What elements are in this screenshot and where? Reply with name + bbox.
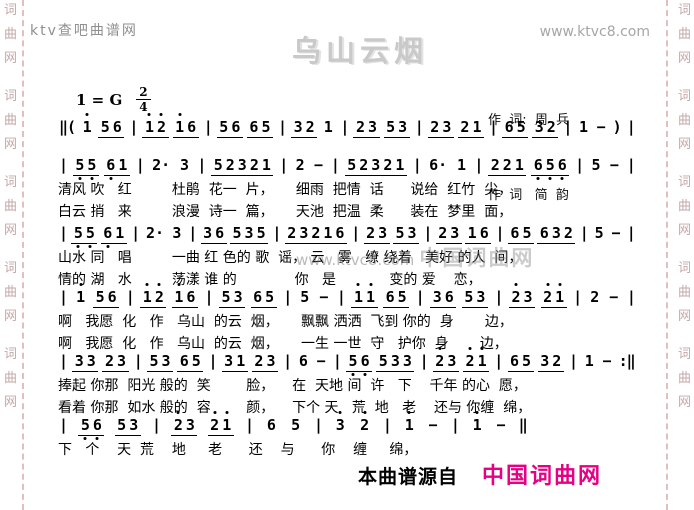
note: 1 — [583, 352, 595, 370]
note-high-octave: 2 — [510, 288, 522, 306]
note-group: 52321 — [211, 156, 273, 176]
note-high-octave: 1 — [554, 288, 566, 306]
note-low-octave: 5 — [84, 224, 96, 242]
note: 6 — [111, 118, 123, 136]
note: 5 — [521, 224, 533, 242]
note-high-octave: 3 — [334, 416, 346, 434]
barline: | — [133, 352, 143, 370]
note: 5 — [190, 352, 202, 370]
note: 5 — [377, 352, 389, 370]
note: 6 — [478, 224, 490, 242]
note: 6 — [297, 352, 309, 370]
rail-char: 网 — [4, 224, 17, 238]
note: 5 — [255, 224, 267, 242]
note: 5 — [220, 288, 232, 306]
note-high-octave: 1 — [403, 416, 415, 434]
note: 6 — [230, 118, 242, 136]
note-group: 1 — [582, 352, 596, 370]
barline: | — [579, 224, 589, 242]
note-high-octave: 1 — [81, 118, 93, 136]
note: 5 — [260, 118, 272, 136]
barline: | — [203, 288, 213, 306]
lyrics-line: 山水 同 唱 一曲 红 色的 歌 谣， 云 雾 缭 绕着 美好 的人 间， — [58, 249, 636, 268]
note: 3 — [389, 352, 401, 370]
note-group: 23216 — [285, 224, 347, 244]
note: 2· — [151, 156, 172, 174]
note-group: 55 — [71, 224, 97, 244]
note-low-octave: 6 — [102, 224, 114, 242]
note-high-octave: 1 — [365, 288, 377, 306]
rail-text-group: 词曲网 — [4, 90, 17, 152]
barline: | — [278, 156, 288, 174]
note-high-octave: 2 — [359, 416, 371, 434]
note-group: 61 — [104, 156, 130, 176]
note: 5 — [99, 118, 111, 136]
note-dash: − — [317, 288, 330, 306]
note-group: 56 — [78, 416, 104, 436]
barline: | — [330, 156, 340, 174]
note-low-octave: 5 — [79, 416, 91, 434]
barline: | — [271, 224, 281, 242]
note-group: 23 — [171, 416, 197, 436]
note: 5 — [396, 288, 408, 306]
note-group: 1 — [402, 416, 416, 434]
rail-text-group: 词曲网 — [678, 4, 691, 66]
note: 5 — [515, 118, 527, 136]
note: 1 — [513, 156, 525, 174]
note-group: 36 — [201, 224, 227, 244]
rail-text-group: 词曲网 — [678, 262, 691, 324]
rail-char: 网 — [678, 224, 691, 238]
notation-line: |5653|2321|65|32|1−|1−‖ — [58, 410, 528, 438]
rail-char: 曲 — [678, 28, 691, 42]
rail-char: 曲 — [4, 28, 17, 42]
note-group: 3 — [177, 156, 191, 174]
rail-char: 曲 — [678, 286, 691, 300]
note-group: 2· — [144, 224, 167, 242]
note-group: 23 — [353, 118, 379, 138]
barline: | — [419, 352, 429, 370]
barline: | — [412, 156, 422, 174]
note: 1 — [117, 156, 129, 174]
note: 3 — [539, 352, 551, 370]
note-high-octave: 1 — [141, 288, 153, 306]
right-watermark-rail: 词曲网词曲网词曲网词曲网词曲网 — [678, 4, 691, 410]
note-group: 65 — [247, 118, 273, 138]
note-dash: − — [315, 352, 328, 370]
note-group: 21 — [541, 288, 567, 308]
note-group: 2 — [358, 416, 372, 434]
barline: | — [336, 288, 346, 306]
note-high-octave: 1 — [143, 118, 155, 136]
note: 3 — [533, 118, 545, 136]
rail-text-group: 词曲网 — [4, 176, 17, 238]
note-group: 2 — [293, 156, 307, 174]
barline: :‖ — [618, 352, 636, 370]
note-group: 533 — [376, 352, 414, 372]
note: 2 — [437, 224, 449, 242]
note: 3 — [202, 224, 214, 242]
note: 1 — [322, 118, 334, 136]
note-group: 535 — [230, 224, 268, 244]
note: 5 — [116, 416, 128, 434]
barline: | — [244, 416, 254, 434]
barline: | — [626, 118, 636, 136]
note: 5 — [346, 156, 358, 174]
barline: | — [151, 416, 161, 434]
barline: | — [128, 118, 138, 136]
note: 2 — [358, 156, 370, 174]
note: 6 — [185, 288, 197, 306]
note-low-octave: 5 — [347, 352, 359, 370]
note-group: 23 — [433, 352, 459, 372]
note: 5 — [148, 352, 160, 370]
barline: | — [626, 156, 636, 174]
note: 2 — [103, 352, 115, 370]
note-group: 5 — [592, 224, 606, 242]
note: 3 — [406, 224, 418, 242]
barline: | — [58, 288, 68, 306]
note: 5 — [521, 352, 533, 370]
note: 3 — [243, 224, 255, 242]
note-group: 23 — [436, 224, 462, 244]
rail-char: 词 — [4, 90, 17, 104]
note-high-octave: 1 — [173, 288, 185, 306]
note-dash: − — [609, 224, 622, 242]
left-dashed-border — [22, 0, 24, 510]
note-group: 1 — [455, 156, 469, 174]
note: 2 — [224, 156, 236, 174]
note-dash: − — [595, 118, 608, 136]
note: 2 — [365, 224, 377, 242]
note: 3 — [128, 416, 140, 434]
note: 5 — [231, 224, 243, 242]
note-dash: − — [427, 416, 440, 434]
note-group: 11 — [351, 288, 377, 308]
left-watermark-rail: 词曲网词曲网词曲网词曲网词曲网 — [4, 4, 17, 410]
rail-char: 网 — [678, 310, 691, 324]
note-group: 23 — [428, 118, 454, 138]
barline: | — [415, 288, 425, 306]
note-group: 16 — [173, 118, 199, 138]
score-system-4: |156|1216|5365|5−|1165|3653|2321|2−|啊 我愿… — [58, 282, 636, 354]
barline: | — [495, 224, 505, 242]
source-label: 本曲谱源自 — [358, 462, 458, 489]
note-group: 1 — [576, 118, 590, 136]
rail-text-group: 词曲网 — [4, 262, 17, 324]
note-group: 65 — [502, 118, 528, 138]
rail-char: 曲 — [4, 286, 17, 300]
rail-char: 曲 — [4, 200, 17, 214]
note: 2 — [545, 118, 557, 136]
note: 1 — [394, 156, 406, 174]
note: 3 — [160, 352, 172, 370]
note: 6 — [509, 224, 521, 242]
note: 3 — [370, 156, 382, 174]
note: 6 — [443, 288, 455, 306]
lyrics-line: 啊 我愿 化 作 乌山 的云 烟， 飘飘 洒洒 飞到 你的 身 边， — [58, 313, 636, 332]
note: 1 — [235, 352, 247, 370]
note: 5 — [593, 224, 605, 242]
note-group: 61 — [101, 224, 127, 244]
note-low-octave: 6 — [359, 352, 371, 370]
sheet-music-page: 词曲网词曲网词曲网词曲网词曲网 词曲网词曲网词曲网词曲网词曲网 ktv查吧曲谱网… — [0, 0, 694, 510]
note: 3 — [441, 118, 453, 136]
note: 2 — [310, 224, 322, 242]
rail-text-group: 词曲网 — [4, 4, 17, 66]
barline: | — [450, 416, 460, 434]
rail-char: 词 — [678, 90, 691, 104]
barline: | — [58, 224, 68, 242]
note: 3 — [550, 224, 562, 242]
rail-text-group: 词曲网 — [678, 176, 691, 238]
note-group: 53 — [393, 224, 419, 244]
note-high-octave: 2 — [172, 416, 184, 434]
note: 3 — [184, 416, 196, 434]
barline: ‖ — [518, 416, 528, 434]
note: 3 — [223, 352, 235, 370]
barline: | — [493, 288, 503, 306]
note-dash: − — [607, 288, 620, 306]
barline: | — [493, 352, 503, 370]
note: 5 — [212, 156, 224, 174]
note-group: 53 — [147, 352, 173, 372]
note-high-octave: 2 — [464, 352, 476, 370]
note-group: 56 — [217, 118, 243, 138]
barline: | — [58, 156, 68, 174]
note: 3 — [446, 352, 458, 370]
note-group: 65 — [177, 352, 203, 372]
score-system-1: ‖(156|1216|5665|321|2353|2321|6532|1−)| — [58, 112, 636, 140]
note: 2 — [489, 156, 501, 174]
note-group: 21 — [463, 352, 489, 372]
barline: | — [282, 288, 292, 306]
note: 1 — [577, 118, 589, 136]
note: 3 — [397, 118, 409, 136]
note: 1 — [322, 224, 334, 242]
notation-line: ‖(156|1216|5665|321|2353|2321|6532|1−)| — [58, 112, 636, 140]
note-dash: − — [608, 156, 621, 174]
note-high-octave: 1 — [352, 288, 364, 306]
barline: | — [562, 118, 572, 136]
note: 6 — [334, 224, 346, 242]
note: 5 — [590, 156, 602, 174]
rail-char: 词 — [678, 262, 691, 276]
barline: | — [130, 224, 140, 242]
note-group: 36 — [430, 288, 456, 308]
note-group: 32 — [538, 352, 564, 372]
note: 6 — [252, 288, 264, 306]
note-group: 53 — [462, 288, 488, 308]
barline: | — [473, 156, 483, 174]
note: 3 — [298, 224, 310, 242]
barline: | — [626, 288, 636, 306]
rail-char: 曲 — [678, 372, 691, 386]
note-high-octave: 1 — [471, 416, 483, 434]
rail-text-group: 词曲网 — [678, 90, 691, 152]
note-group: 5 — [589, 156, 603, 174]
rail-text-group: 词曲网 — [4, 348, 17, 410]
lyrics-line: 捧起 你那 阳光 般的 笑 脸， 在 天地 间 许 下 千年 的心 愿， — [58, 377, 636, 396]
note: 6 — [538, 224, 550, 242]
barline: | — [626, 224, 636, 242]
barline: | — [332, 352, 342, 370]
note: 3 — [73, 352, 85, 370]
note: 5 — [299, 288, 311, 306]
barline: | — [58, 416, 68, 434]
note: 6· — [428, 156, 449, 174]
note-low-octave: 6 — [105, 156, 117, 174]
rail-char: 词 — [4, 176, 17, 190]
rail-char: 词 — [678, 4, 691, 18]
note: 3 — [116, 352, 128, 370]
barline: | — [488, 118, 498, 136]
barline: ‖( — [58, 118, 76, 136]
note-group: 23 — [364, 224, 390, 244]
note-high-octave: 2 — [434, 352, 446, 370]
note: 2 — [429, 118, 441, 136]
note: 6 — [248, 118, 260, 136]
note-group: 656 — [531, 156, 569, 176]
note: 6 — [265, 416, 277, 434]
score-system-3: |5561|2·3|36535|23216|2353|2316|65632|5−… — [58, 218, 636, 290]
barline: | — [207, 352, 217, 370]
note-high-octave: 1 — [75, 288, 87, 306]
note: 3 — [232, 288, 244, 306]
barline: | — [422, 224, 432, 242]
note-group: 21 — [208, 416, 234, 436]
note-low-octave: 6 — [91, 416, 103, 434]
note: 6 — [106, 288, 118, 306]
barline: | — [125, 288, 135, 306]
lyrics-line: 清风 吹 红 杜鹃 花一 片， 细雨 把情 话 说给 红竹 尖， — [58, 181, 636, 200]
note-group: 32 — [532, 118, 558, 138]
rail-char: 词 — [678, 176, 691, 190]
note-low-octave: 5 — [86, 156, 98, 174]
note: 3 — [449, 224, 461, 242]
note-dash: − — [600, 352, 613, 370]
note-group: 56 — [98, 118, 124, 138]
barline: | — [574, 156, 584, 174]
note: 2 — [501, 156, 513, 174]
note-high-octave: 1 — [174, 118, 186, 136]
note-group: 3 — [333, 416, 347, 434]
note: 3 — [377, 224, 389, 242]
note-group: 31 — [222, 352, 248, 372]
note-group: 1 — [321, 118, 335, 136]
note: 2 — [459, 118, 471, 136]
note-group: 53 — [115, 416, 141, 436]
note: 1 — [260, 156, 272, 174]
barline: | — [339, 118, 349, 136]
rail-char: 网 — [678, 52, 691, 66]
note-high-octave: 2 — [153, 288, 165, 306]
note: 2 — [304, 118, 316, 136]
note: 2 — [551, 352, 563, 370]
note-group: 12 — [140, 288, 166, 308]
note-group: 5 — [298, 288, 312, 306]
note: 5 — [290, 416, 302, 434]
note-group: 6 — [264, 416, 278, 434]
note: 5 — [264, 288, 276, 306]
note: 6 — [503, 118, 515, 136]
score-system-5: |3323|5365|3123|6−|56533|2321|6532|1−:‖捧… — [58, 346, 636, 418]
note-dash: − — [312, 156, 325, 174]
note-high-octave: 2 — [155, 118, 167, 136]
note: 2 — [248, 156, 260, 174]
note-group: 1 — [470, 416, 484, 434]
note-group: 33 — [72, 352, 98, 372]
note: 1 — [456, 156, 468, 174]
note: 5 — [463, 288, 475, 306]
barline: | — [282, 352, 292, 370]
notation-line: |156|1216|5365|5−|1165|3653|2321|2−| — [58, 282, 636, 310]
note-low-octave: 5 — [74, 156, 86, 174]
note-group: 1 — [74, 288, 88, 306]
note-group: 12 — [142, 118, 168, 138]
rail-char: 网 — [4, 52, 17, 66]
barline: | — [313, 416, 323, 434]
right-dashed-border — [666, 0, 668, 510]
source-line: 本曲谱源自 中国词曲网 — [358, 458, 602, 490]
source-brand: 中国词曲网 — [482, 458, 602, 490]
note: 6 — [214, 224, 226, 242]
barline: | — [568, 352, 578, 370]
note: 6 — [509, 352, 521, 370]
note: 3 — [401, 352, 413, 370]
notation-line: |3323|5365|3123|6−|56533|2321|6532|1−:‖ — [58, 346, 636, 374]
barline: ) — [612, 118, 622, 136]
note: 3 — [178, 156, 190, 174]
rail-char: 曲 — [4, 372, 17, 386]
barline: | — [58, 352, 68, 370]
note-group: 6· — [427, 156, 450, 174]
note: 6 — [186, 118, 198, 136]
rail-text-group: 词曲网 — [678, 348, 691, 410]
note: 3 — [265, 352, 277, 370]
note-group: 65 — [251, 288, 277, 308]
notation-line: |5561|2·3|52321|2−|52321|6·1|221656|5−| — [58, 150, 636, 178]
note: 2 — [354, 118, 366, 136]
note-low-octave: 6 — [532, 156, 544, 174]
rail-char: 网 — [4, 396, 17, 410]
note-group: 56 — [93, 288, 119, 308]
note: 3 — [292, 118, 304, 136]
rail-char: 词 — [4, 262, 17, 276]
barline: | — [187, 224, 197, 242]
barline: | — [382, 416, 392, 434]
note: 3 — [171, 224, 183, 242]
note-group: 221 — [488, 156, 526, 176]
note-group: 5 — [289, 416, 303, 434]
note-high-octave: 2 — [542, 288, 554, 306]
note-group: 23 — [252, 352, 278, 372]
notation-line: |5561|2·3|36535|23216|2353|2316|65632|5−… — [58, 218, 636, 246]
note-group: 3 — [170, 224, 184, 242]
barline: | — [196, 156, 206, 174]
note-group: 21 — [458, 118, 484, 138]
score-system-2: |5561|2·3|52321|2−|52321|6·1|221656|5−|清… — [58, 150, 636, 222]
note-high-octave: 2 — [209, 416, 221, 434]
note-group: 6 — [296, 352, 310, 370]
note-group: 2· — [150, 156, 173, 174]
note: 6 — [384, 288, 396, 306]
note-group: 52321 — [345, 156, 407, 176]
note-group: 16 — [465, 224, 491, 244]
rail-char: 网 — [678, 396, 691, 410]
barline: | — [414, 118, 424, 136]
note-high-octave: 1 — [221, 416, 233, 434]
